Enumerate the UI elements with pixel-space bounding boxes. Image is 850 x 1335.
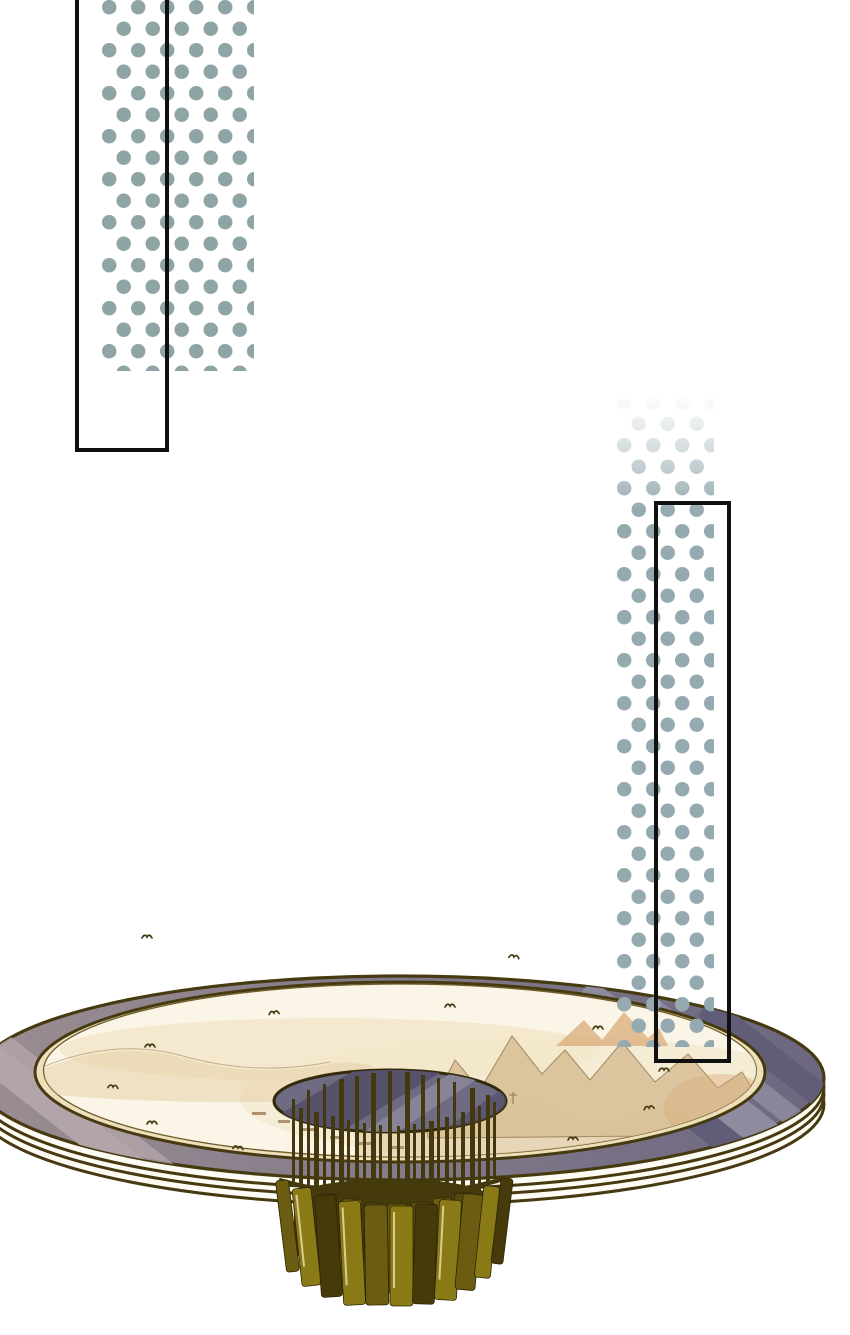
comic-panel [0, 0, 850, 1335]
panel-frame-right [654, 501, 731, 1063]
chandelier-panels [275, 1178, 513, 1306]
panel-frame-top-left [75, 0, 169, 452]
